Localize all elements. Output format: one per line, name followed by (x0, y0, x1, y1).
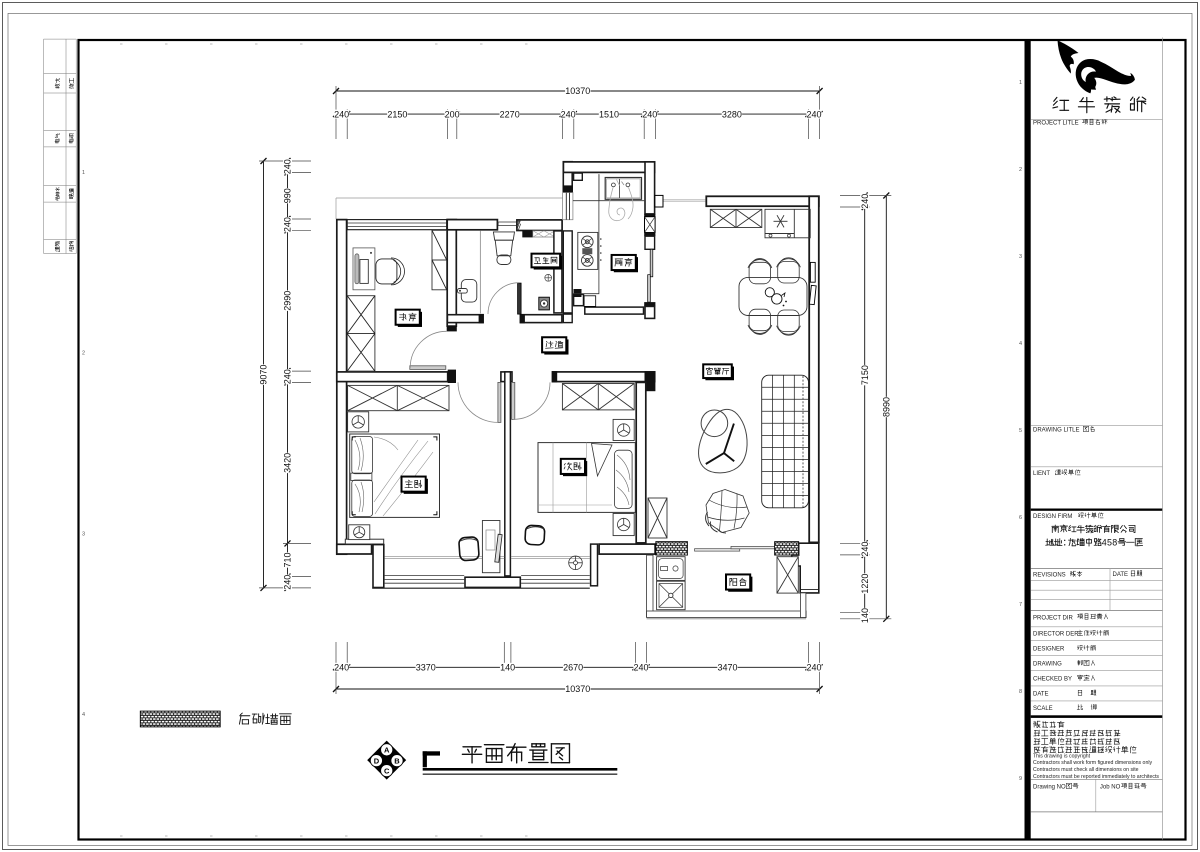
svg-text:3: 3 (82, 531, 85, 537)
svg-text:240: 240 (860, 542, 870, 557)
svg-text:240: 240 (283, 217, 293, 232)
svg-text:Contractors must check all dim: Contractors must check all dimensions on… (1033, 767, 1139, 773)
svg-text:240: 240 (642, 109, 657, 119)
svg-text:240: 240 (806, 663, 821, 673)
svg-text:1: 1 (82, 170, 85, 176)
svg-text:9070: 9070 (259, 365, 269, 385)
svg-text:1510: 1510 (599, 109, 619, 119)
svg-text:2270: 2270 (500, 109, 520, 119)
svg-text:9: 9 (1019, 776, 1022, 782)
svg-text:Contractors must be reported i: Contractors must be reported immediately… (1033, 774, 1159, 780)
svg-text:240: 240 (283, 159, 293, 174)
svg-text:DRAWING LITLE: DRAWING LITLE (1033, 428, 1079, 434)
svg-text:240: 240 (633, 663, 648, 673)
svg-text:7: 7 (1019, 602, 1022, 608)
svg-text:DESIGNER: DESIGNER (1033, 647, 1065, 653)
svg-text:4: 4 (1102, 537, 1107, 547)
svg-text:2: 2 (82, 351, 85, 357)
svg-text:1: 1 (1019, 80, 1022, 86)
svg-text:8: 8 (1019, 689, 1022, 695)
svg-text:Contractors shall work form fi: Contractors shall work form figured dime… (1033, 760, 1152, 766)
svg-text:C: C (384, 766, 390, 775)
svg-text:7150: 7150 (860, 365, 870, 385)
svg-text:Job NO: Job NO (1100, 785, 1121, 791)
svg-text:DRAWING: DRAWING (1033, 662, 1062, 668)
svg-text:240: 240 (334, 663, 349, 673)
svg-text:PROJECT DIR: PROJECT DIR (1033, 615, 1074, 621)
svg-text:8: 8 (1112, 537, 1117, 547)
svg-text:DESIGN FIRM: DESIGN FIRM (1033, 514, 1072, 520)
svg-text:240: 240 (334, 109, 349, 119)
svg-text:240: 240 (806, 109, 821, 119)
svg-text:240: 240 (283, 575, 293, 590)
svg-text:5: 5 (1107, 537, 1112, 547)
svg-text:240: 240 (561, 109, 576, 119)
svg-text:2150: 2150 (387, 109, 407, 119)
svg-text:PROJECT LITLE: PROJECT LITLE (1033, 121, 1079, 127)
svg-text:990: 990 (283, 188, 293, 203)
svg-text:This drawing is copyright: This drawing is copyright (1033, 753, 1091, 759)
svg-text:DATE: DATE (1113, 572, 1129, 578)
svg-text:SCALE: SCALE (1033, 706, 1053, 712)
svg-text:3370: 3370 (416, 663, 436, 673)
svg-text:3420: 3420 (283, 453, 293, 473)
svg-text:2: 2 (1019, 167, 1022, 173)
svg-text:4: 4 (1019, 341, 1022, 347)
svg-text:2990: 2990 (283, 291, 293, 311)
svg-text:240: 240 (283, 369, 293, 384)
svg-text:DIRECTOR DER: DIRECTOR DER (1033, 632, 1079, 638)
svg-text:10370: 10370 (565, 86, 590, 96)
svg-text:CHECKED BY: CHECKED BY (1033, 677, 1072, 683)
svg-text:D: D (374, 756, 380, 765)
svg-text:A: A (384, 746, 390, 755)
svg-text:140: 140 (500, 663, 515, 673)
svg-text:8990: 8990 (882, 397, 892, 417)
svg-text:1220: 1220 (860, 574, 870, 594)
svg-text:DATE: DATE (1033, 692, 1049, 698)
svg-text:2670: 2670 (563, 663, 583, 673)
svg-text:10370: 10370 (565, 684, 590, 694)
svg-text:5: 5 (1019, 428, 1022, 434)
svg-text:710: 710 (283, 552, 293, 567)
svg-text:B: B (394, 756, 400, 765)
svg-text:3280: 3280 (722, 109, 742, 119)
svg-text:6: 6 (1019, 515, 1022, 521)
svg-text:Drawing NO: Drawing NO (1033, 785, 1066, 791)
svg-text:3470: 3470 (717, 663, 737, 673)
svg-text:REVISIONS: REVISIONS (1033, 573, 1066, 579)
svg-text:200: 200 (445, 109, 460, 119)
svg-text:140: 140 (860, 608, 870, 623)
svg-text:4: 4 (82, 712, 85, 718)
svg-text:3: 3 (1019, 254, 1022, 260)
svg-text:240: 240 (860, 194, 870, 209)
svg-text:LIENT: LIENT (1033, 471, 1050, 477)
